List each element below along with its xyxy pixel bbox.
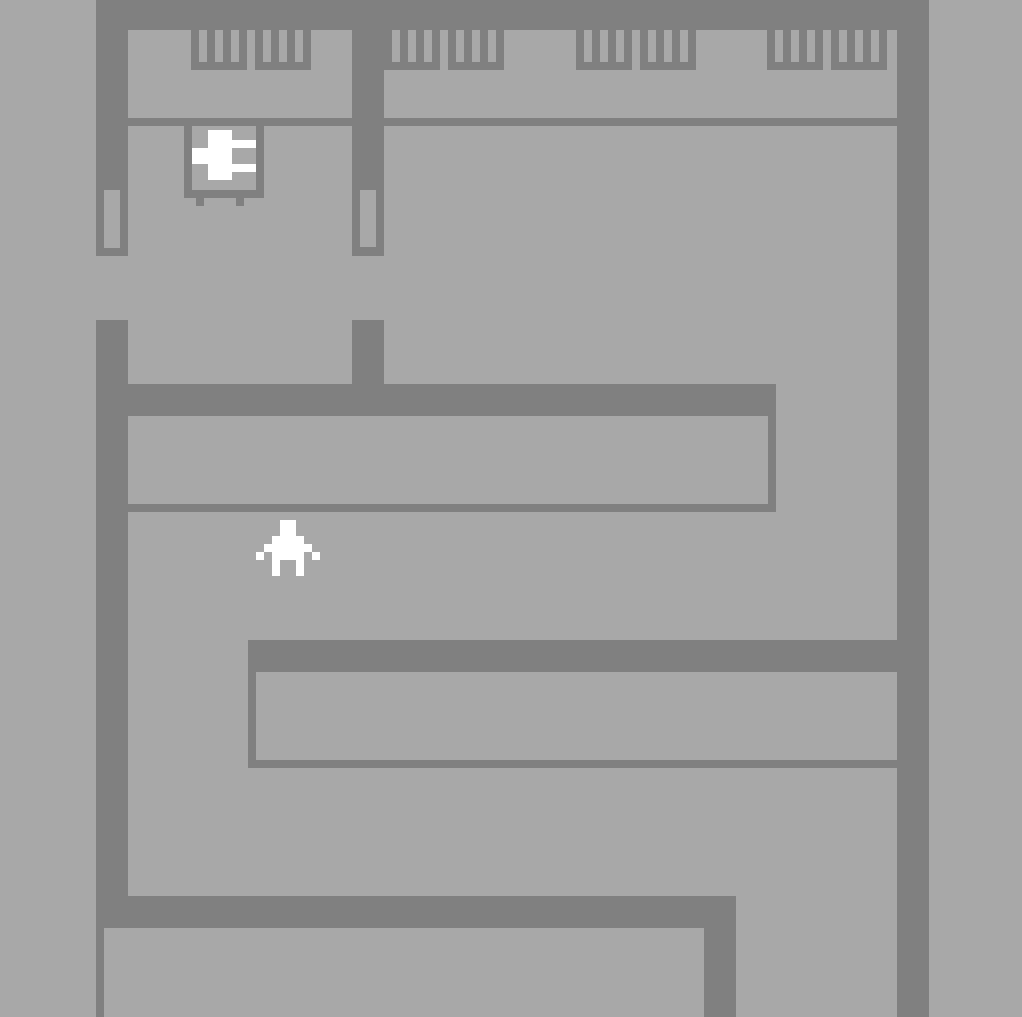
- desk1-bottom-edge: [128, 504, 776, 512]
- machine-device-arm-bottom-right: [232, 164, 256, 172]
- machine-table-leg-right: [236, 198, 244, 206]
- console-7-slot-2: [791, 30, 799, 62]
- console-3-slot-3: [424, 30, 432, 62]
- desk2-top-edge: [248, 640, 897, 672]
- player-shoulders: [272, 536, 304, 544]
- console-6-slot-1: [648, 30, 656, 62]
- player-hand-right: [312, 552, 320, 560]
- console-8-slot-2: [855, 30, 863, 62]
- console-6-slot-2: [664, 30, 672, 62]
- console-3-slot-2: [408, 30, 416, 62]
- player-torso: [272, 552, 304, 560]
- console-1-slot-2: [215, 30, 223, 62]
- console-4-slot-3: [488, 30, 496, 62]
- console-1-slot-1: [199, 30, 207, 62]
- console-8-slot-1: [839, 30, 847, 62]
- player-head: [280, 520, 296, 536]
- console-6-slot-3: [680, 30, 688, 62]
- left-wall-slot: [104, 190, 120, 248]
- player-leg-left: [272, 560, 280, 576]
- console-3-slot-1: [392, 30, 400, 62]
- desk1-top-edge: [128, 384, 776, 416]
- machine-device-core: [208, 130, 232, 180]
- bottom-wall: [96, 896, 736, 928]
- divider-wall-slot: [360, 190, 376, 247]
- divider-wall-stub: [352, 320, 384, 384]
- right-wall: [897, 0, 929, 1017]
- machine-device-arm-top-right: [232, 140, 256, 148]
- console-7-slot-1: [775, 30, 783, 62]
- desk2-bottom-edge: [248, 760, 897, 768]
- console-8-slot-3: [871, 30, 879, 62]
- desk2-left-edge: [248, 672, 256, 760]
- console-2-slot-3: [295, 30, 303, 62]
- console-4-slot-2: [472, 30, 480, 62]
- bottom-room-left-edge: [96, 928, 104, 1017]
- player-arms-row: [264, 544, 312, 552]
- console-2-slot-1: [263, 30, 271, 62]
- console-2-slot-2: [279, 30, 287, 62]
- console-5-slot-3: [616, 30, 624, 62]
- top-wall: [96, 0, 929, 30]
- desk1-right-edge: [768, 416, 776, 504]
- player-hand-left: [256, 552, 264, 560]
- machine-device-arm-left: [192, 148, 208, 164]
- console-1-slot-3: [231, 30, 239, 62]
- machine-table-leg-left: [196, 198, 204, 206]
- game-viewport[interactable]: [0, 0, 1022, 1017]
- console-7-slot-3: [807, 30, 815, 62]
- left-wall-lower: [96, 320, 128, 896]
- console-5-slot-1: [584, 30, 592, 62]
- console-4-slot-1: [456, 30, 464, 62]
- console-5-slot-2: [600, 30, 608, 62]
- player-leg-right: [296, 560, 304, 576]
- bottom-wall-branch: [704, 928, 736, 1017]
